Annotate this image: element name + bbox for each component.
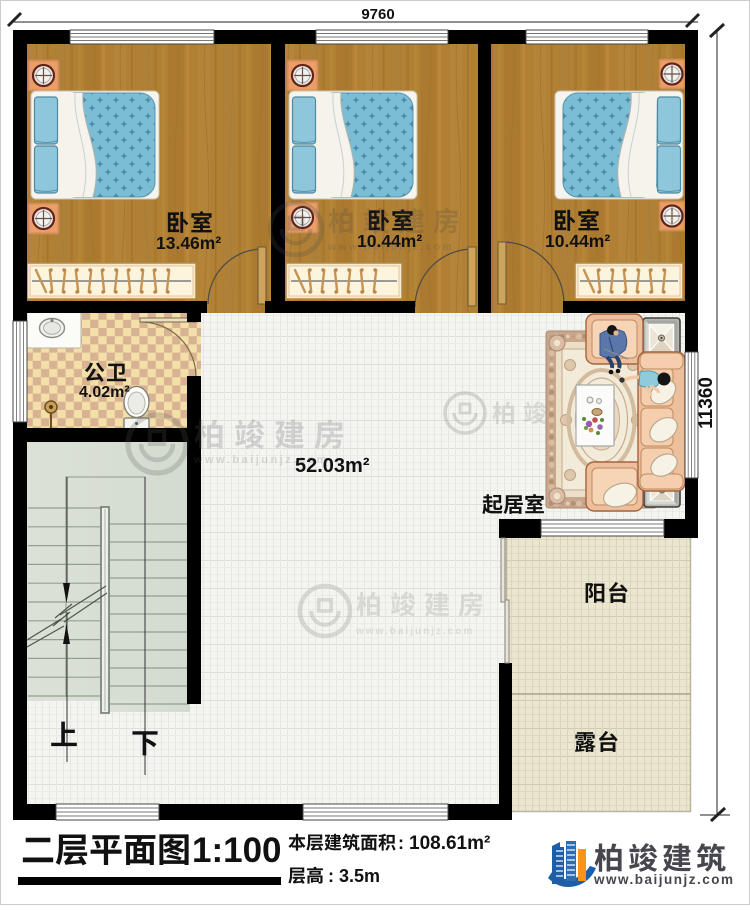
svg-text:1:100: 1:100 [192, 831, 282, 870]
svg-text:9760: 9760 [361, 6, 394, 23]
svg-text:4.02m²: 4.02m² [79, 384, 130, 401]
svg-text:11360: 11360 [696, 377, 717, 429]
svg-text:10.44m²: 10.44m² [545, 231, 610, 251]
svg-text:www.baijunjz.com: www.baijunjz.com [193, 454, 329, 466]
svg-text:www.baijunjz.com: www.baijunjz.com [327, 241, 454, 253]
svg-text::: : [398, 833, 404, 853]
svg-text:13.46m²: 13.46m² [156, 233, 221, 253]
svg-text:: 3.5m: : 3.5m [328, 866, 380, 886]
svg-text:www.baijunjz.com: www.baijunjz.com [593, 872, 735, 887]
svg-text:108.61m²: 108.61m² [409, 833, 490, 854]
svg-text:www.baijunjz.com: www.baijunjz.com [355, 626, 474, 637]
